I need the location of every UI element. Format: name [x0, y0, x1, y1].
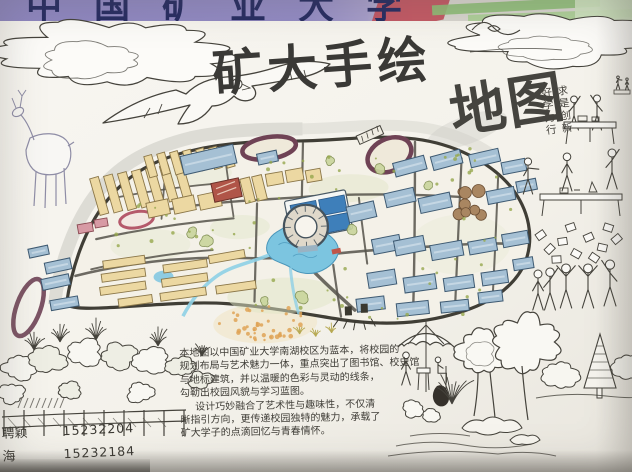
- photo-frame: 中国矿业大学 矿大手绘 地图 求是创新 好学力行 本地图以中国矿业大学南湖校区为…: [0, 0, 632, 472]
- mini-figures-sketch: [614, 76, 630, 94]
- map-description: 本地图以中国矿业大学南湖校区为蓝本，将校园的规划布局与艺术魅力一体，重点突出了图…: [179, 343, 433, 441]
- graduation-scene-sketch: [533, 223, 623, 310]
- rocks: [462, 417, 522, 435]
- credit-name: 海: [2, 443, 59, 464]
- deer-sketch: [11, 90, 74, 208]
- credit-name: 聘颖: [1, 420, 58, 441]
- credits: 聘颖 15232204 海 15232184: [1, 417, 136, 469]
- credit-student-id: 15232184: [63, 443, 135, 461]
- cloud-sketch-left: [0, 19, 237, 85]
- map-title: 矿大手绘: [210, 19, 434, 106]
- credit-student-id: 15232204: [62, 420, 134, 438]
